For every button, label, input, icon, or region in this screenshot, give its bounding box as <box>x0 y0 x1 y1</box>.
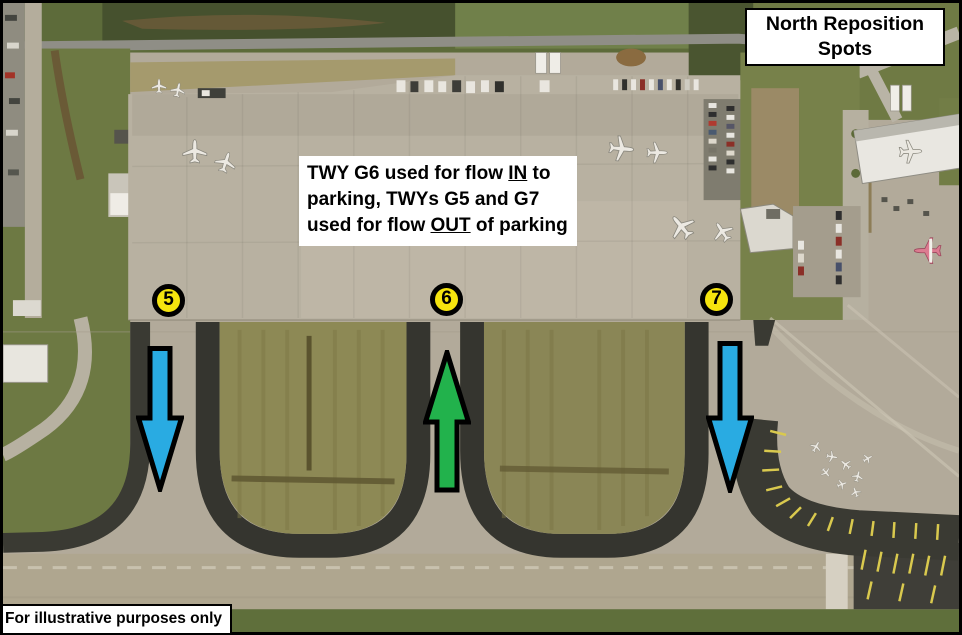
spot-5-label: 5 <box>163 289 174 310</box>
spot-7-label: 7 <box>711 288 722 309</box>
title-box: North Reposition Spots <box>745 8 945 66</box>
up-arrow-shape <box>426 353 469 491</box>
disclaimer-label: For illustrative purposes only <box>3 604 232 635</box>
reposition-spot-7-badge: 7 <box>700 283 733 316</box>
flow-note-line-3: used for flow OUT of parking <box>307 213 568 239</box>
note-text: to <box>527 163 550 184</box>
down-arrow-shape <box>709 344 752 491</box>
note-text: of parking <box>471 215 568 236</box>
disclaimer-text: For illustrative purposes only <box>5 610 222 627</box>
flow-out-down-arrow-icon-spot5 <box>136 346 184 492</box>
down-arrow-shape <box>139 349 182 490</box>
annotated-airport-map: North Reposition Spots TWY G6 used for f… <box>0 0 962 635</box>
reposition-spot-5-badge: 5 <box>152 284 185 317</box>
note-text-underlined-out: OUT <box>431 215 471 236</box>
note-text-underlined-in: IN <box>508 163 527 184</box>
note-text: used for flow <box>307 215 431 236</box>
aerial-photo <box>3 3 959 632</box>
reposition-spot-6-badge: 6 <box>430 283 463 316</box>
page-title: North Reposition Spots <box>766 13 924 60</box>
note-text: TWY G6 used for flow <box>307 163 508 184</box>
spot-6-label: 6 <box>441 288 452 309</box>
note-text: parking, TWYs G5 and G7 <box>307 189 539 210</box>
flow-note-line-2: parking, TWYs G5 and G7 <box>307 187 568 213</box>
flow-note-line-1: TWY G6 used for flow IN to <box>307 161 568 187</box>
flow-out-down-arrow-icon-spot7 <box>706 341 754 493</box>
flow-in-up-arrow-icon-spot6 <box>423 350 471 493</box>
flow-note-box: TWY G6 used for flow IN to parking, TWYs… <box>299 156 577 246</box>
